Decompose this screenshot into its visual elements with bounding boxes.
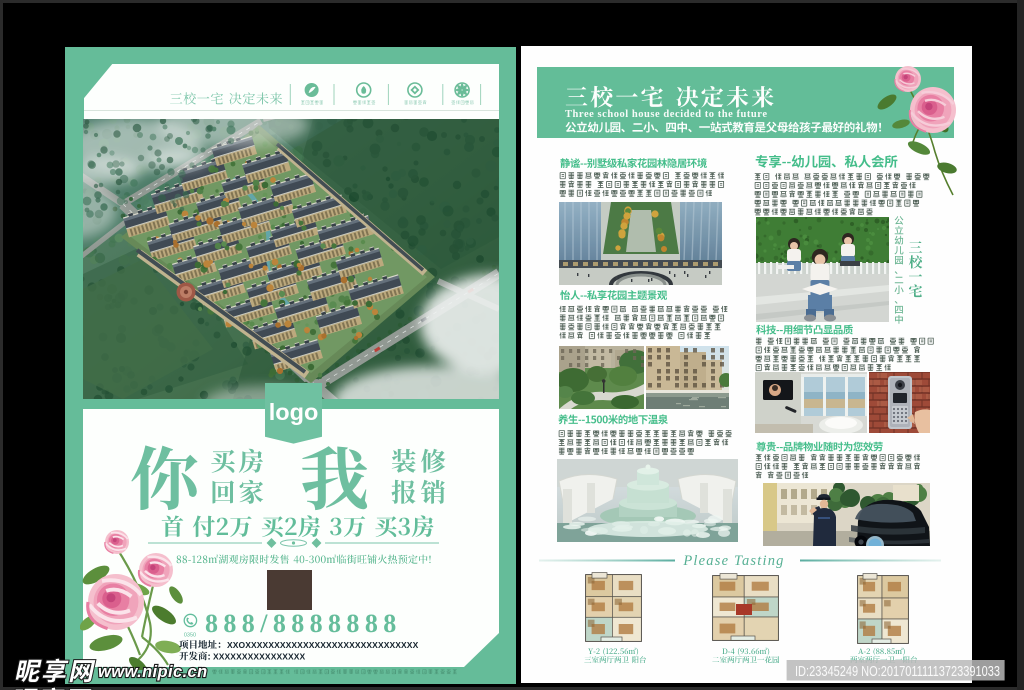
svg-text:www.nipic.cn: www.nipic.cn bbox=[98, 663, 208, 681]
svg-text:XXOXXXXXXXXXXXXXXXXXXXXXXXXXXX: XXOXXXXXXXXXXXXXXXXXXXXXXXXXXXXXX bbox=[227, 640, 419, 650]
svg-text:logo: logo bbox=[269, 399, 319, 425]
svg-text:888/8888888: 888/8888888 bbox=[205, 609, 402, 638]
svg-text:ID:23345249 NO:201701111137233: ID:23345249 NO:20170111113723391033 bbox=[795, 664, 1000, 680]
svg-text:0350: 0350 bbox=[184, 633, 196, 639]
svg-text:Three school house decided to: Three school house decided to the future bbox=[565, 109, 767, 120]
svg-text:Please Tasting: Please Tasting bbox=[682, 553, 784, 569]
svg-text:XXXXXXXXXXXXXXXX: XXXXXXXXXXXXXXXX bbox=[213, 652, 306, 662]
